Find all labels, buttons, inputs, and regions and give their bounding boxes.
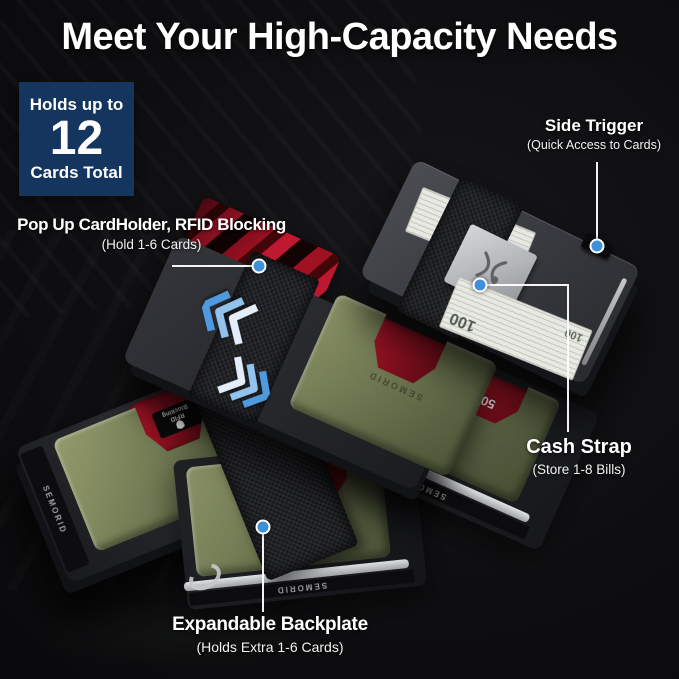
callout-dot: [252, 259, 267, 274]
callout-expandable-backplate: Expandable Backplate (Holds Extra 1-6 Ca…: [120, 614, 420, 655]
callout-sublabel: (Hold 1-6 Cards): [11, 237, 292, 252]
callout-label: Cash Strap: [479, 436, 679, 459]
leader-line: [484, 284, 569, 286]
callout-label: Expandable Backplate: [120, 614, 420, 636]
bill-value-text: 100: [563, 326, 585, 344]
callout-label: Pop Up CardHolder, RFID Blocking: [11, 215, 292, 235]
page-title: Meet Your High-Capacity Needs: [0, 16, 679, 59]
callout-sublabel: (Store 1-8 Bills): [479, 462, 679, 477]
callout-dot: [590, 239, 605, 254]
badge-number: 12: [50, 115, 103, 164]
callout-label: Side Trigger: [494, 116, 679, 136]
callout-sublabel: (Holds Extra 1-6 Cards): [120, 639, 420, 655]
callout-sublabel: (Quick Access to Cards): [494, 138, 679, 152]
capacity-badge: Holds up to 12 Cards Total: [19, 82, 134, 196]
badge-line2: Cards Total: [30, 163, 122, 183]
leader-line: [596, 162, 598, 240]
bill-value-text: 100: [447, 308, 479, 335]
callout-popup-cardholder: Pop Up CardHolder, RFID Blocking (Hold 1…: [11, 215, 292, 252]
callout-side-trigger: Side Trigger (Quick Access to Cards): [494, 116, 679, 152]
card-slot-edge: [581, 277, 628, 365]
callout-dot: [256, 520, 271, 535]
product-infographic: SEMORID RFID Blocking 50 SEMORID SEMORID: [0, 0, 679, 679]
leader-line: [567, 284, 569, 432]
callout-cash-strap: Cash Strap (Store 1-8 Bills): [479, 436, 679, 477]
callout-dot: [473, 278, 488, 293]
leader-line: [172, 265, 256, 267]
leader-line: [262, 531, 264, 612]
